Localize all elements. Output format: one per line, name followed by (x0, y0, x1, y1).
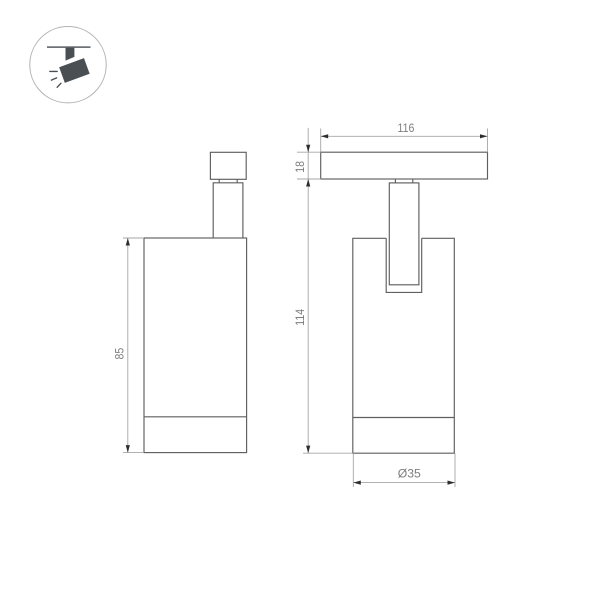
svg-text:116: 116 (397, 123, 414, 136)
svg-text:Ø35: Ø35 (398, 467, 421, 481)
svg-text:18: 18 (295, 161, 308, 173)
svg-text:114: 114 (295, 309, 308, 326)
svg-text:85: 85 (114, 348, 127, 360)
